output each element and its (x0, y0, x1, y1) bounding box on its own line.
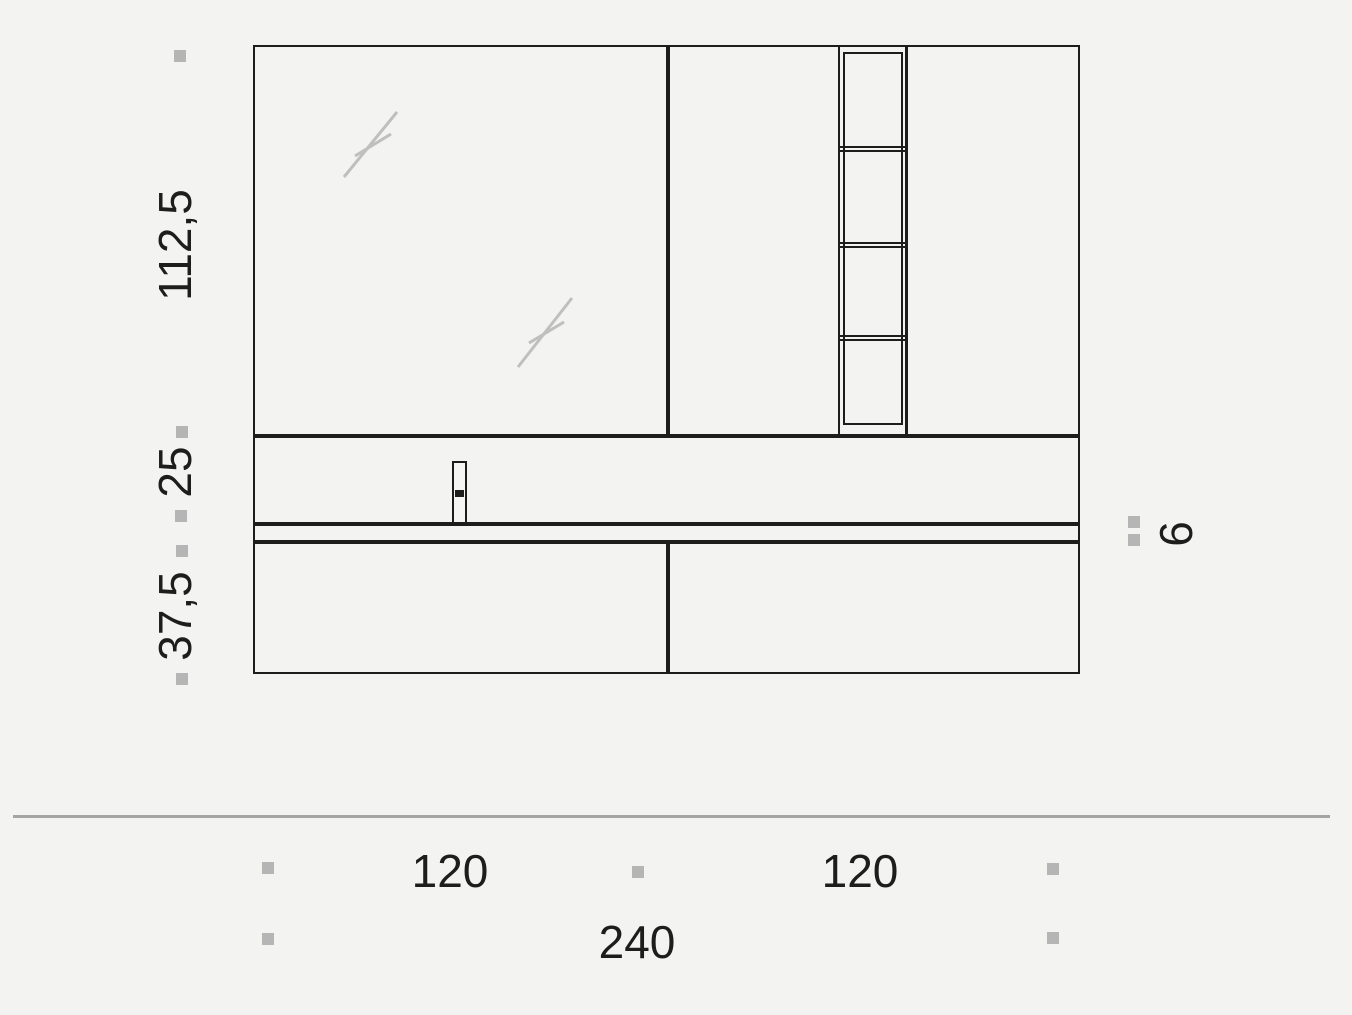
shelf-column-inner-box (843, 52, 903, 425)
furniture-elevation-drawing: 112,5 25 37,5 6 120 120 240 (0, 0, 1352, 1015)
faucet-handle (455, 490, 464, 497)
dim-label-basin-unit-height: 25 (152, 446, 198, 497)
dim-label-mirror-height: 112,5 (152, 189, 198, 301)
dimension-marker (176, 673, 188, 685)
mirror-panel (253, 45, 668, 436)
dim-label-right-module-width: 120 (822, 848, 899, 894)
drawer-unit-left (253, 542, 668, 674)
dimension-marker (176, 545, 188, 557)
dim-label-left-module-width: 120 (412, 848, 489, 894)
shelf-column-right-edge (905, 45, 908, 436)
dimension-marker (1128, 516, 1140, 528)
shelf-compartment-divider (838, 335, 908, 341)
dimension-marker (176, 426, 188, 438)
ground-line (13, 815, 1330, 818)
dimension-marker (262, 933, 274, 945)
dimension-marker (632, 866, 644, 878)
dim-label-top-thickness: 6 (1153, 521, 1199, 547)
countertop-slab (253, 524, 1080, 542)
basin-counter-band (253, 436, 1080, 524)
dim-label-drawer-unit-height: 37,5 (152, 571, 198, 661)
dimension-marker (1047, 932, 1059, 944)
shelf-compartment-divider (838, 242, 908, 248)
dimension-marker (174, 50, 186, 62)
drawer-unit-right (668, 542, 1080, 674)
dimension-marker (1047, 863, 1059, 875)
shelf-compartment-divider (838, 146, 908, 152)
dimension-marker (1128, 534, 1140, 546)
dim-label-total-width: 240 (599, 919, 676, 965)
dimension-marker (262, 862, 274, 874)
dimension-marker (175, 510, 187, 522)
shelf-column-left-edge (838, 45, 840, 436)
